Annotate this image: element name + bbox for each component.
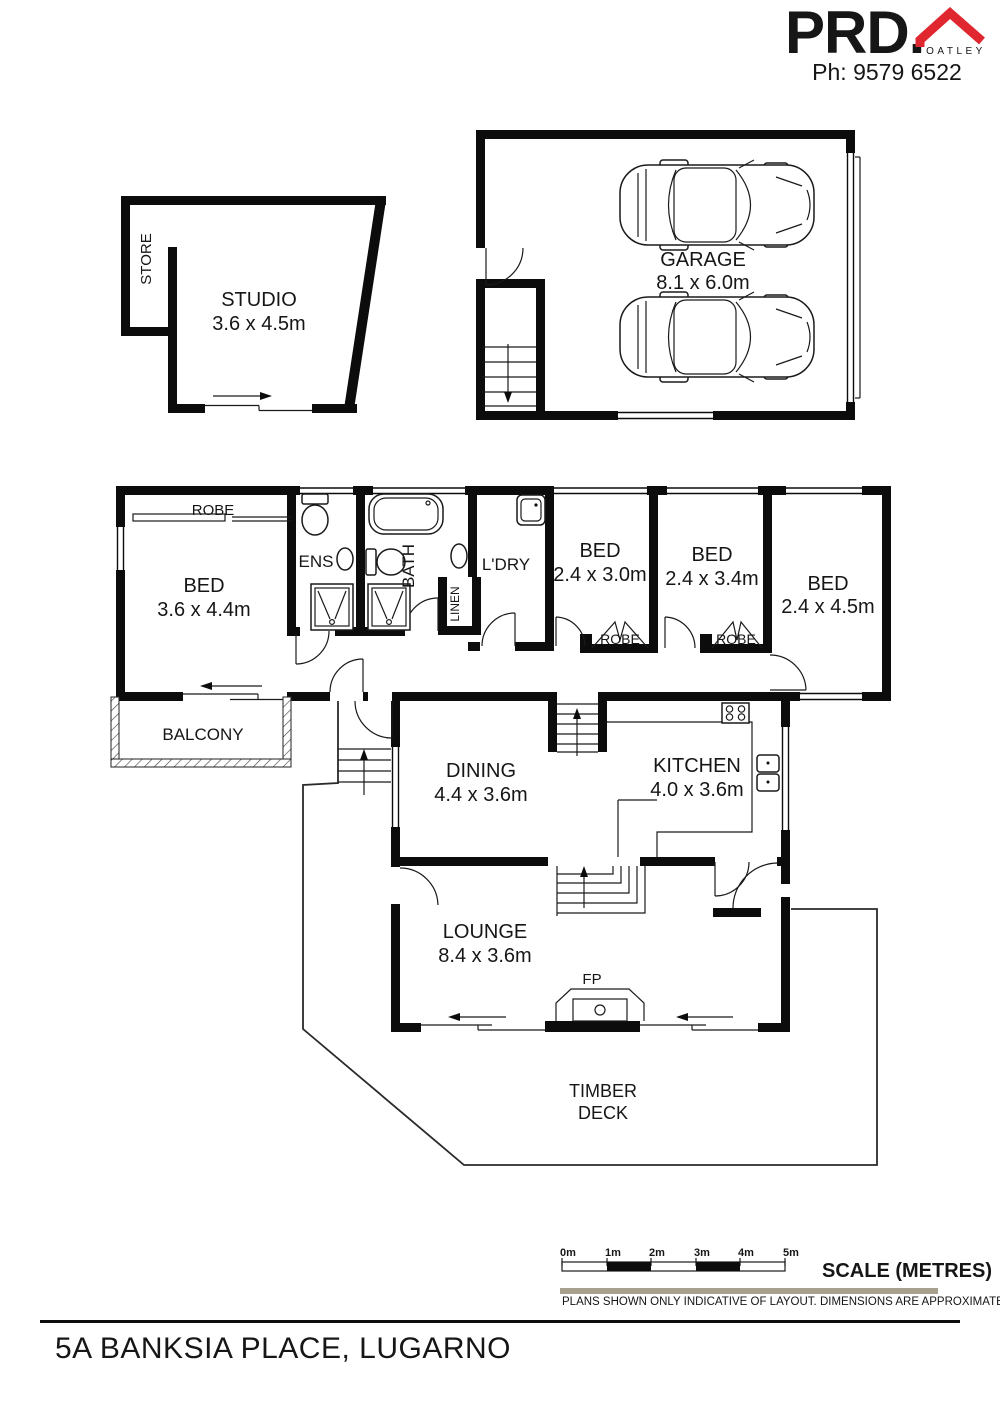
brand-text: PRD. [785,0,924,66]
lounge-dims: 8.4 x 3.6m [438,945,531,967]
robe-label: ROBE [600,631,640,647]
bed4-dims: 2.4 x 4.5m [781,596,874,618]
balcony: BALCONY [111,697,291,767]
fireplace-icon [556,989,644,1021]
floorplan-page: PRD. OATLEY Ph: 9579 6522 STORE STUDIO 3… [0,0,1000,1415]
garage-stairs [482,344,536,406]
timber-deck: TIMBER DECK [303,701,877,1165]
ens-label: ENS [299,552,334,571]
laundry-tub-icon [517,495,545,525]
entry-steps [338,749,391,795]
floorplan-svg: PRD. OATLEY Ph: 9579 6522 STORE STUDIO 3… [0,0,1000,1415]
scale-tick: 4m [738,1247,754,1259]
bath-label: BATH [399,544,418,588]
fp-label: FP [582,971,601,988]
garage-door-track [855,157,860,398]
balcony-label: BALCONY [162,725,243,744]
deck-label-line1: TIMBER [569,1081,637,1101]
dining-kitchen-level: DINING 4.4 x 3.6m KITCHEN 4.0 x 3.6m [355,692,790,917]
scale-tick: 3m [694,1247,710,1259]
double-door [713,862,777,917]
toilet-icon [302,494,328,535]
studio-block: STORE STUDIO 3.6 x 4.5m [121,196,386,413]
stove-icon [722,703,749,723]
bed-main-dims: 3.6 x 4.4m [157,599,250,621]
bedroom-level: ROBE ROBE [116,486,891,701]
car-icon [620,292,814,382]
address-text: 5A BANKSIA PLACE, LUGARNO [55,1332,511,1365]
divider-bar [560,1288,938,1294]
scale-tick: 1m [605,1247,621,1259]
office-text: OATLEY [926,46,986,57]
garage-label: GARAGE [660,249,746,271]
stairs-up [548,692,607,756]
kitchen-label: KITCHEN [653,755,741,777]
scale-tick: 2m [649,1247,665,1259]
slider-arrow [200,682,262,690]
scale-bar: 0m 1m 2m 3m 4m 5m SCALE (METRES) PLANS S… [560,1247,1000,1308]
entry-door-arc [355,701,392,738]
disclaimer-text: PLANS SHOWN ONLY INDICATIVE OF LAYOUT. D… [562,1296,1000,1308]
kitchen-dims: 4.0 x 3.6m [650,779,743,801]
bed-main-label: BED [183,575,224,597]
bed2-dims: 2.4 x 3.0m [553,564,646,586]
shower-icon [368,584,410,630]
bathtub-icon [369,494,443,534]
robe-closet: ROBE [700,622,772,653]
bed4-label: BED [807,573,848,595]
phone-text: Ph: 9579 6522 [812,59,962,85]
scale-title: SCALE (METRES) [822,1260,992,1282]
garage-dims: 8.1 x 6.0m [656,272,749,294]
roof-icon [920,13,982,47]
footer: 5A BANKSIA PLACE, LUGARNO [40,1320,960,1365]
scale-tick: 5m [783,1247,799,1259]
dining-label: DINING [446,760,516,782]
slider-arrow [448,1013,506,1021]
dining-dims: 4.4 x 3.6m [434,784,527,806]
slider-arrow [676,1013,733,1021]
door-arc [400,868,438,905]
door-arrow [213,392,272,400]
robe-main-label: ROBE [192,502,235,519]
lounge-label: LOUNGE [443,921,527,943]
agency-logo: PRD. OATLEY Ph: 9579 6522 [785,0,986,85]
sink-icon [757,755,779,791]
studio-dims: 3.6 x 4.5m [212,313,305,335]
basin-icon [337,548,353,570]
ldry-label: L'DRY [482,555,530,574]
studio-label: STUDIO [221,289,297,311]
footer-rule [40,1320,960,1323]
robe-closet: ROBE [580,622,658,653]
bed3-label: BED [691,544,732,566]
bed3-dims: 2.4 x 3.4m [665,568,758,590]
bed2-label: BED [579,540,620,562]
robe-label: ROBE [716,631,756,647]
car-icon [620,160,814,250]
stairs-down [557,866,645,916]
scale-tick: 0m [560,1247,576,1259]
basin-icon [451,544,467,568]
deck-label-line2: DECK [578,1103,628,1123]
store-label: STORE [138,233,155,284]
linen-label: LINEN [448,586,462,621]
garage-block: GARAGE 8.1 x 6.0m [476,130,860,420]
shower-icon [311,584,353,630]
lounge-level: FP LOUNGE 8.4 x 3.6m [391,862,790,1032]
